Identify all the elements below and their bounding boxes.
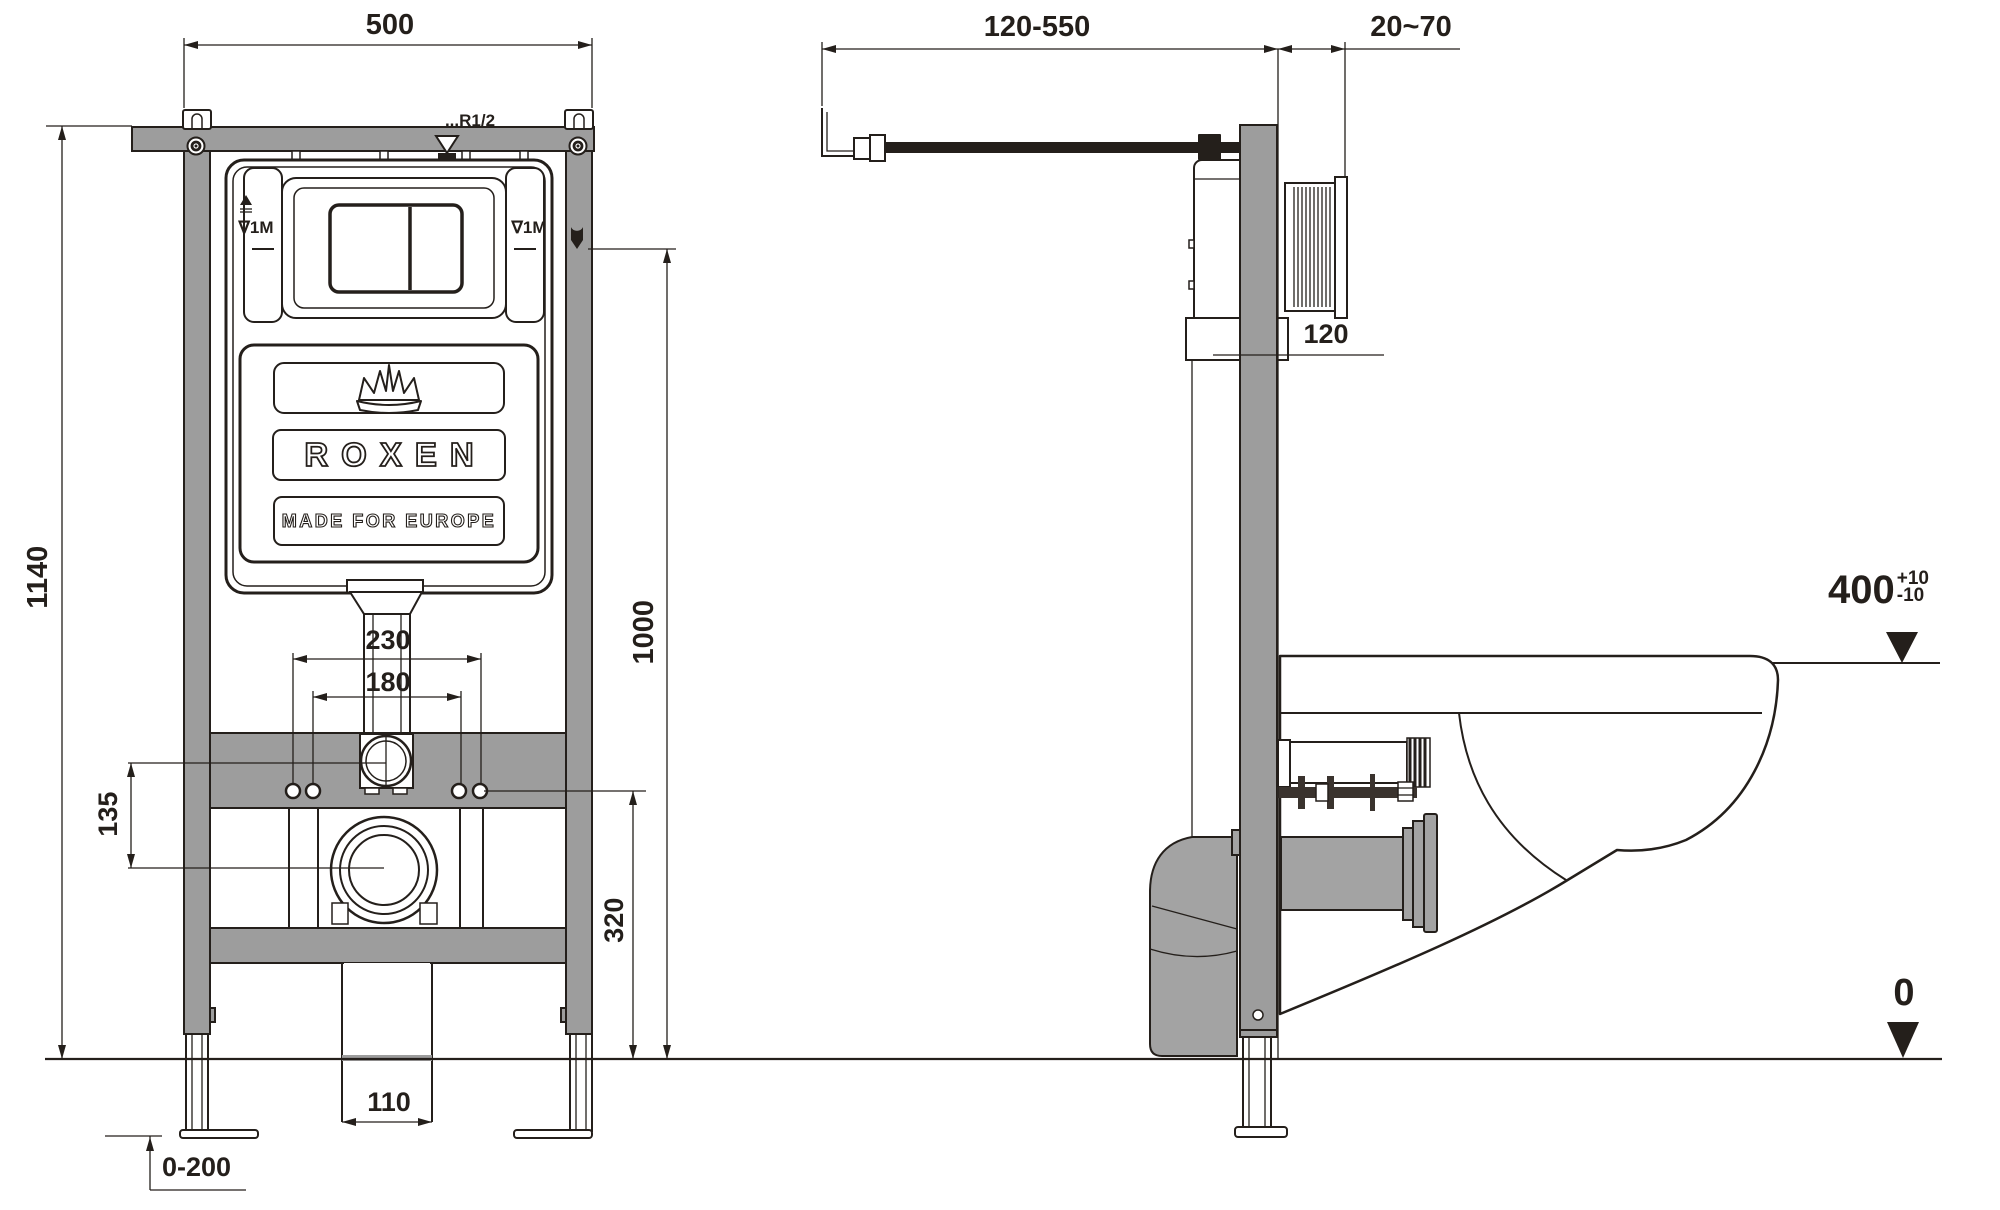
floor-level-label: 0 bbox=[1880, 972, 1928, 1015]
dim-frame-depth: 120 bbox=[1286, 320, 1366, 348]
water-thread-label: ...R1/2 bbox=[420, 112, 520, 130]
level-triangle-icon bbox=[1887, 1022, 1919, 1058]
flush-bend-pipe bbox=[347, 580, 423, 733]
nut-icon bbox=[1398, 782, 1413, 801]
dim-outlet-width: 110 bbox=[339, 1088, 439, 1116]
rim-level-label: 400 +10 -10 bbox=[1828, 570, 1929, 610]
flush-plate bbox=[330, 205, 462, 292]
brand-logo-text: ROXEN bbox=[273, 430, 505, 480]
toilet-bowl bbox=[1280, 656, 1778, 1014]
rim-level-tol-minus: -10 bbox=[1897, 587, 1929, 604]
water-supply-pipe bbox=[822, 108, 1240, 161]
dim-upper-height: 1000 bbox=[629, 574, 659, 690]
brand-tagline-text: MADE FOR EUROPE bbox=[274, 497, 504, 545]
dim-overall-height: 1140 bbox=[23, 519, 53, 635]
rim-level-value: 400 bbox=[1828, 570, 1895, 610]
drain-elbow bbox=[1150, 830, 1241, 1056]
screw-icon bbox=[188, 138, 205, 155]
dim-inlet-to-drain: 135 bbox=[94, 756, 122, 872]
screw-icon bbox=[570, 138, 587, 155]
installation-drawing-sheet: 500 1140 1000 320 230 180 135 110 0-200 … bbox=[0, 0, 2000, 1210]
inlet-fitting bbox=[360, 734, 413, 794]
dim-overall-width: 500 bbox=[335, 10, 445, 40]
drain-socket bbox=[331, 817, 437, 924]
dim-wall-finish: 20~70 bbox=[1341, 12, 1481, 42]
technical-drawing-canvas bbox=[0, 0, 2000, 1210]
dim-leg-adjustment: 0-200 bbox=[162, 1153, 292, 1181]
hanger-slot-icon bbox=[574, 114, 584, 128]
level-triangle-icon bbox=[1886, 632, 1918, 663]
dim-drain-height: 320 bbox=[600, 862, 628, 978]
water-level-mark-left: ∇1M bbox=[226, 219, 286, 237]
dim-bolt-span-inner: 180 bbox=[338, 668, 438, 696]
dim-bolt-span-outer: 230 bbox=[338, 626, 438, 654]
access-sleeve bbox=[1285, 177, 1347, 318]
water-level-mark-right: ∇1M bbox=[499, 219, 559, 237]
dim-supply-offset: 120-550 bbox=[967, 12, 1107, 42]
hanger-slot-icon bbox=[192, 114, 202, 128]
valve-icon bbox=[1198, 134, 1221, 160]
